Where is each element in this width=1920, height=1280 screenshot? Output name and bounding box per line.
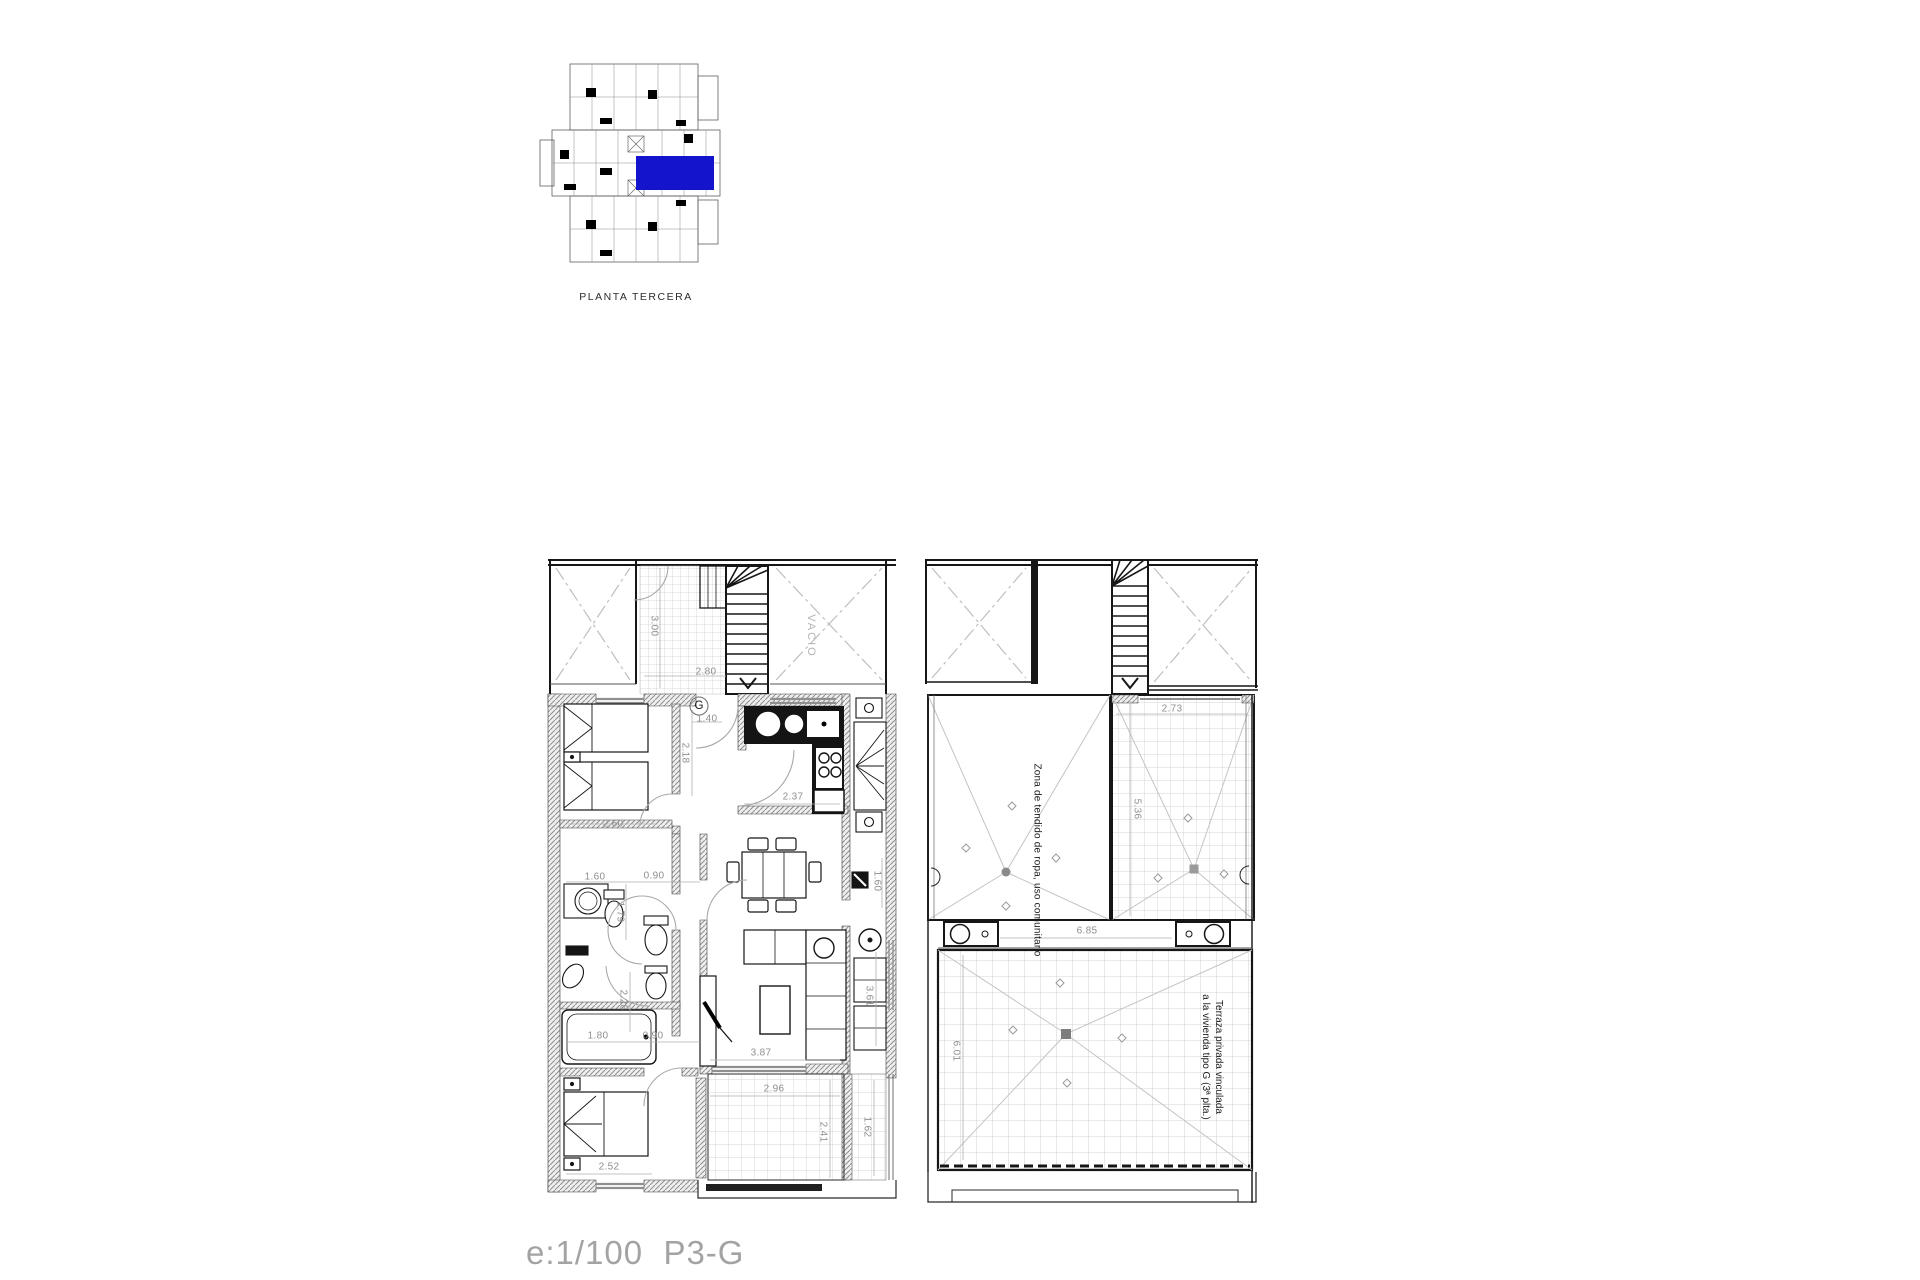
dim-label: 1.60 xyxy=(585,872,606,883)
dim-label: 2.52 xyxy=(599,1162,620,1173)
dim-label: 3.87 xyxy=(751,1048,772,1059)
scale-label: e:1/100 P3-G xyxy=(526,1234,744,1272)
dim-label: 6.01 xyxy=(951,1041,962,1062)
dim-label: 3.61 xyxy=(864,986,875,1007)
living-room xyxy=(700,930,846,1066)
dining-table xyxy=(727,838,821,912)
dim-label: 1.80 xyxy=(588,1031,609,1042)
plan-drawing xyxy=(0,0,1920,1280)
dim-label: 3.00 xyxy=(649,616,660,637)
dim-label: 1.79 xyxy=(615,902,626,923)
dim-label: 2.18 xyxy=(680,743,691,764)
unit-type-label: G xyxy=(695,700,704,712)
zona-tendido-roof xyxy=(928,695,1110,920)
terraza-privada-label: Terraza privada vinculada a la vivienda … xyxy=(1199,994,1225,1119)
dim-label: 6.85 xyxy=(1077,926,1098,937)
floorplan-sheet: PLANTA TERCERA e:1/100 P3-G G VACIO 3.00… xyxy=(0,0,1920,1280)
dim-label: 2.80 xyxy=(696,667,717,678)
dim-label: 2.37 xyxy=(783,792,804,803)
terraza-privada-line2: a la vivienda tipo G (3ª plta.) xyxy=(1199,994,1212,1119)
dim-label: 2.60 xyxy=(603,819,624,830)
zona-tendido-label: Zona de tendido de ropa, uso comunitario xyxy=(1032,763,1043,956)
stair-right-plan xyxy=(1112,560,1148,694)
bedroom-1 xyxy=(564,704,648,810)
site-key-plan xyxy=(540,64,720,262)
dim-label: 1.40 xyxy=(697,714,718,725)
highlighted-unit xyxy=(636,156,714,190)
key-plan-title: PLANTA TERCERA xyxy=(579,291,692,303)
dim-label: 0.90 xyxy=(643,1031,664,1042)
dim-label: 1.62 xyxy=(862,1117,873,1138)
dim-label: 0.90 xyxy=(644,871,665,882)
vacio-label: VACIO xyxy=(805,614,817,657)
dim-label: 2.73 xyxy=(1162,704,1183,715)
dim-label: 2.28 xyxy=(618,990,629,1011)
dim-label: 2.96 xyxy=(764,1084,785,1095)
dim-label: 2.41 xyxy=(818,1122,829,1143)
terraza-privada-line1: Terraza privada vinculada xyxy=(1212,994,1225,1119)
dim-label: 5.36 xyxy=(1132,799,1143,820)
dim-label: 1.60 xyxy=(872,871,883,892)
bedroom-2 xyxy=(564,1078,648,1170)
